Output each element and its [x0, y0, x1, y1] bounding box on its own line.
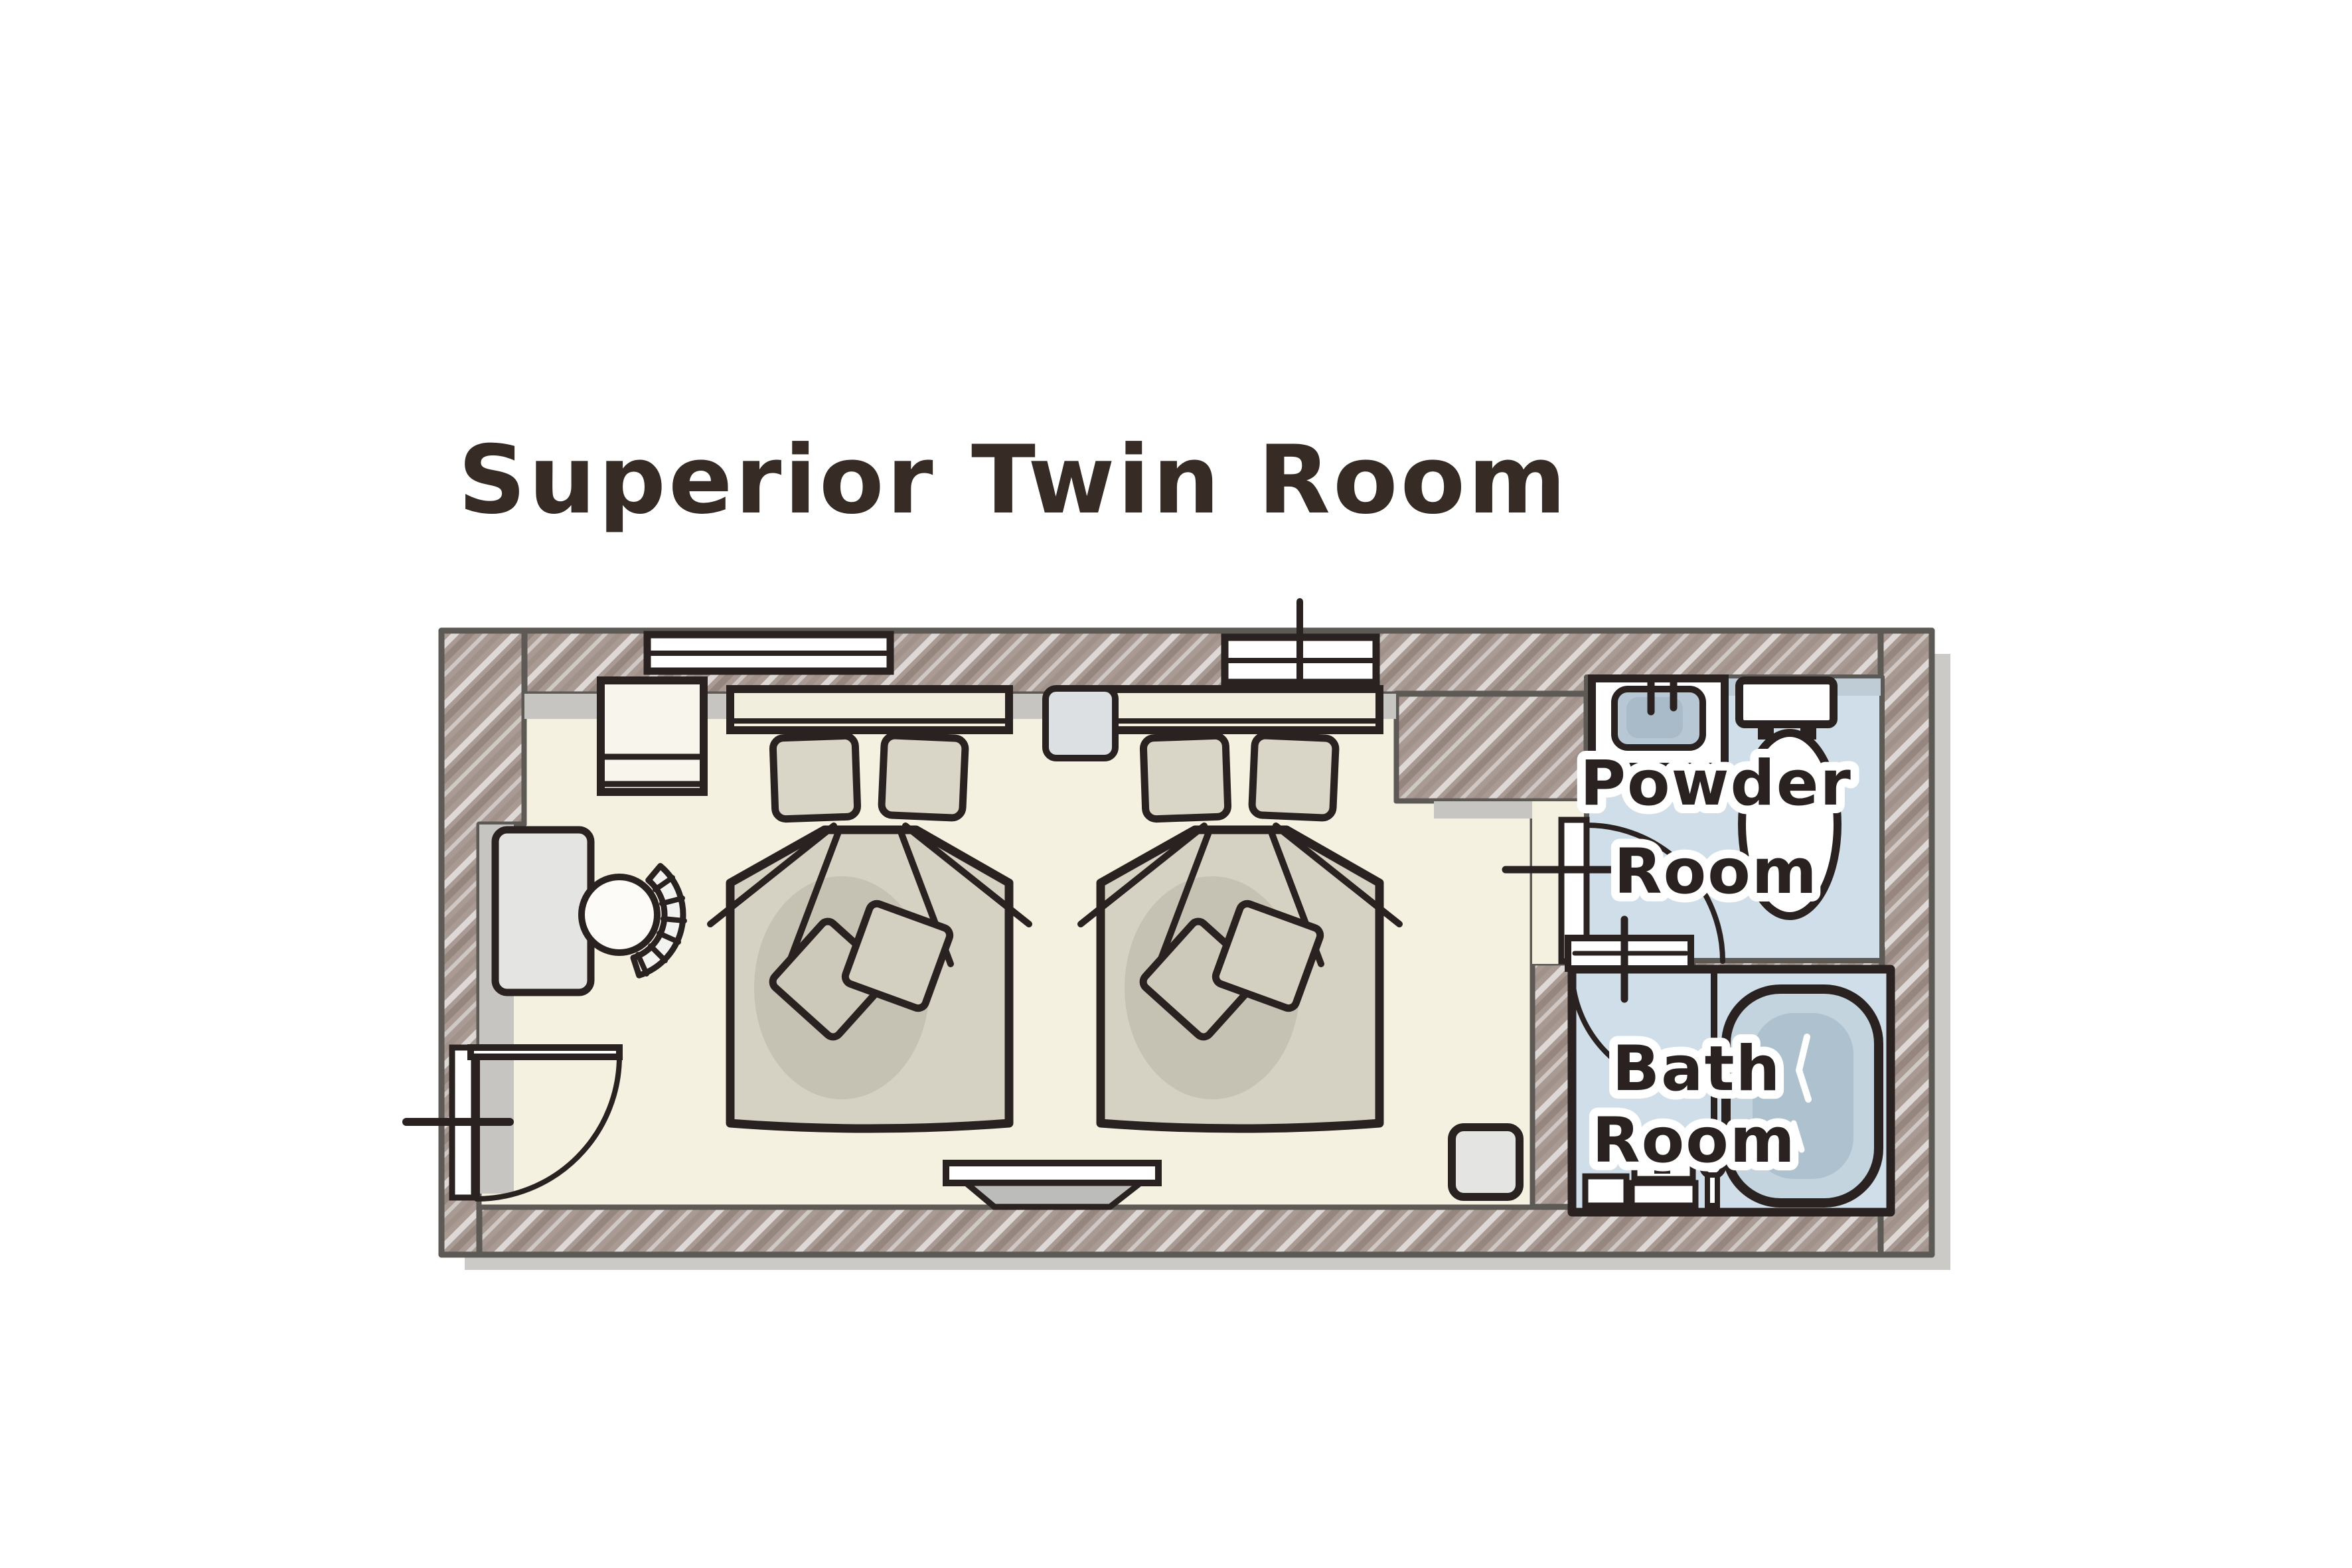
wall-top-right-block — [1396, 694, 1587, 801]
door-leaf — [471, 1048, 619, 1057]
window-icon — [647, 635, 890, 671]
night-stand-icon — [1046, 688, 1115, 758]
bath-room-label-line2: Room — [1592, 1105, 1796, 1177]
powder-room-label-line2: Room — [1614, 836, 1818, 908]
desk-icon — [495, 830, 591, 992]
stool-icon — [1452, 1127, 1520, 1197]
closet-icon — [601, 680, 704, 792]
page-title: Superior Twin Room — [458, 426, 1569, 535]
powder-room-label-line1: Powder — [1580, 747, 1852, 820]
window-icon — [1225, 601, 1376, 696]
floor-plan-page: Superior Twin Room — [0, 0, 2352, 1568]
floor-plan-canvas: Superior Twin Room — [0, 0, 2352, 1568]
bath-room-label-line1: Bath — [1612, 1033, 1782, 1105]
